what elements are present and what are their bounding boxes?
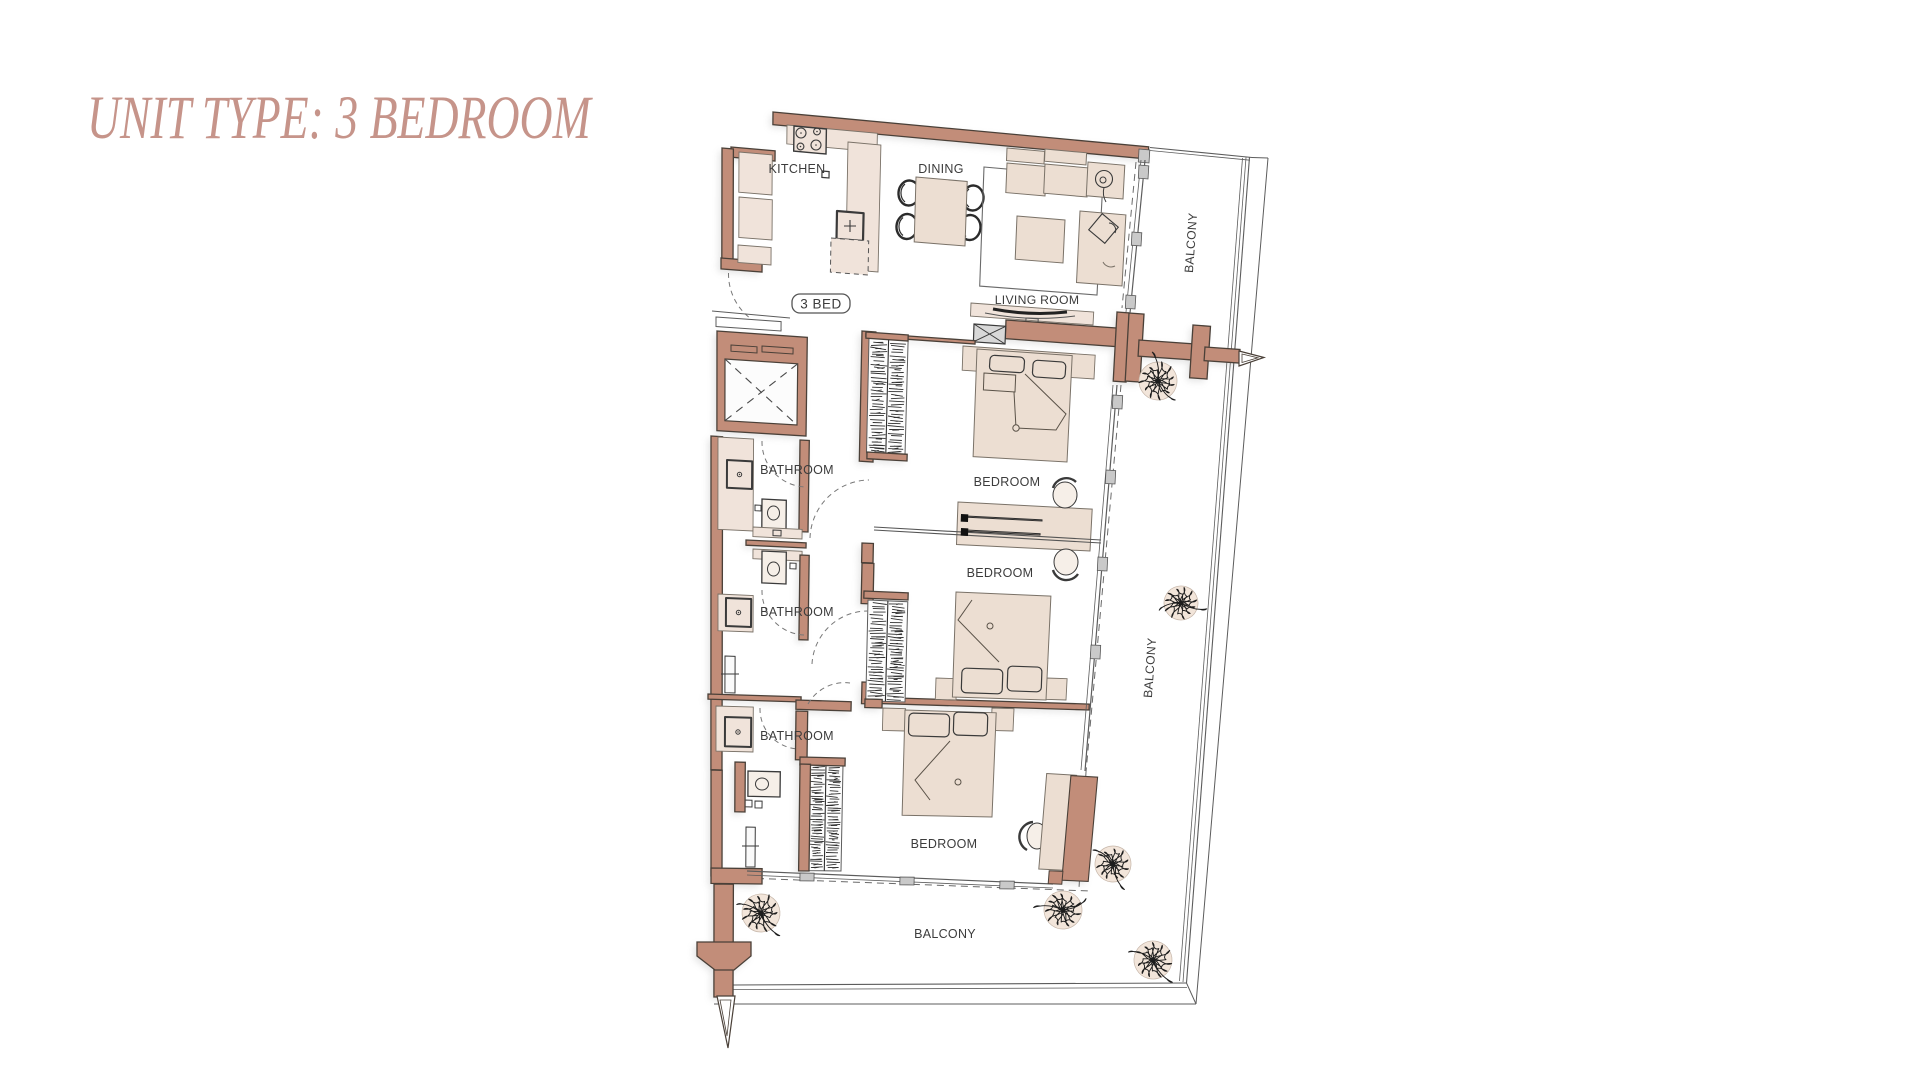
svg-text:BEDROOM: BEDROOM — [967, 566, 1034, 580]
svg-text:BEDROOM: BEDROOM — [911, 837, 978, 851]
svg-text:DINING: DINING — [918, 162, 964, 176]
svg-text:BALCONY: BALCONY — [914, 927, 976, 941]
svg-text:LIVING ROOM: LIVING ROOM — [995, 293, 1080, 307]
svg-text:3 BED: 3 BED — [800, 297, 842, 312]
svg-text:BEDROOM: BEDROOM — [974, 475, 1041, 489]
svg-text:BATHROOM: BATHROOM — [760, 463, 834, 477]
svg-text:BATHROOM: BATHROOM — [760, 729, 834, 743]
svg-text:BATHROOM: BATHROOM — [760, 605, 834, 619]
svg-text:KITCHEN: KITCHEN — [769, 162, 826, 176]
